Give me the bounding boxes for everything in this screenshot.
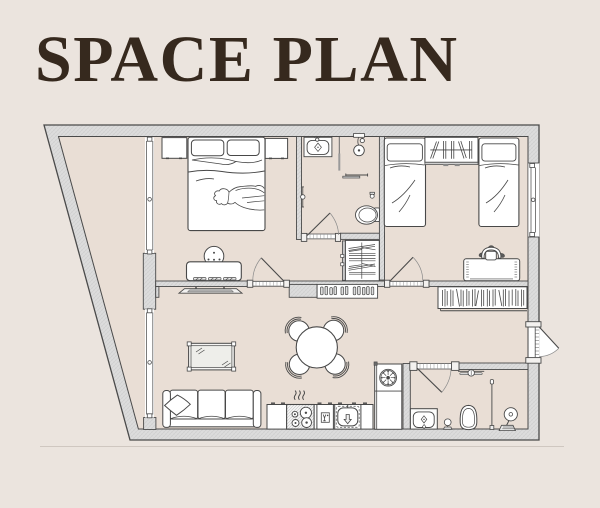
svg-text:SPACE PLAN: SPACE PLAN [35,23,459,96]
